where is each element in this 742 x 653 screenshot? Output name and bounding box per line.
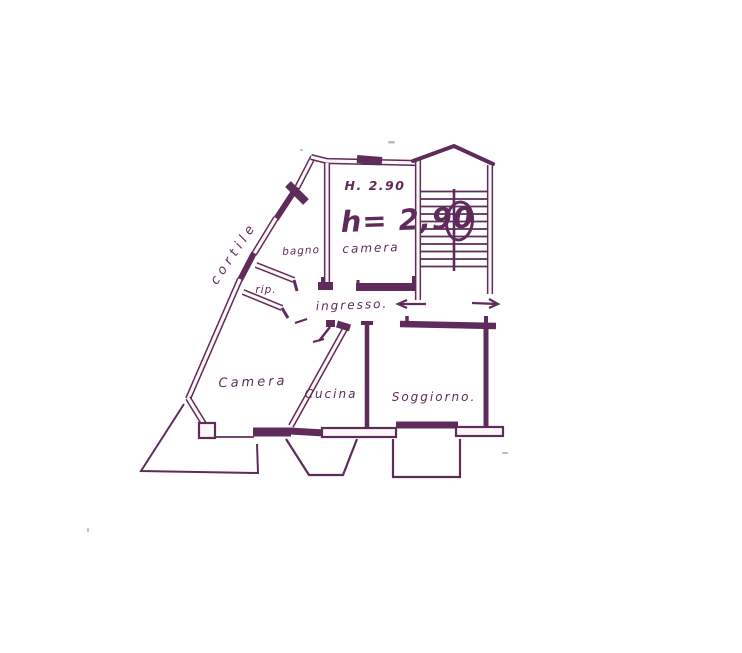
door-swing-dash (295, 319, 307, 323)
label-camera-top: camera (342, 240, 400, 256)
label-ingresso: ingresso. (316, 297, 389, 314)
speck (502, 452, 508, 454)
cucina-balcony-trapezoid (286, 439, 357, 475)
rip-partition-core (256, 265, 294, 280)
stair-roof (413, 146, 493, 164)
wall-segment (240, 253, 254, 280)
wall-segment-core (254, 218, 276, 254)
speck (87, 528, 89, 532)
camera-left-wall (318, 163, 333, 286)
diagonal-wall-cap (337, 324, 350, 328)
floor-plan-page: cortile bagno rip. camera H. 2.90 h= 2,9… (0, 0, 742, 653)
wall-bar (290, 431, 324, 433)
right-window-bar (456, 427, 503, 436)
wall-segment-core (297, 157, 313, 188)
soggiorno-balcony (393, 439, 460, 477)
arrow-left-icon (398, 300, 426, 308)
wall-bar (400, 324, 496, 326)
label-camera-main: Camera (218, 374, 288, 391)
entry-door-block (326, 320, 335, 327)
speck (388, 141, 395, 144)
rip-partition-flag (282, 308, 288, 318)
direction-arrows (398, 299, 498, 308)
soggiorno-top-wall (400, 316, 496, 330)
label-cucina: Cucina (305, 387, 358, 401)
floor-plan-drawing: cortile bagno rip. camera H. 2.90 h= 2,9… (0, 0, 742, 653)
label-soggiorno: Soggiorno. (392, 390, 477, 404)
diagonal-wall-tick (313, 339, 324, 342)
label-height-hand: h= 2,90 (340, 200, 475, 239)
label-height-printed: H. 2.90 (345, 178, 406, 193)
label-bagno: bagno (282, 244, 320, 258)
label-rip: rip. (255, 284, 276, 296)
top-window-bar (357, 159, 382, 161)
wall-elbow-core (188, 398, 204, 424)
camera-bottom-wall (356, 276, 418, 287)
bottom-walls-and-windows (216, 425, 503, 477)
top-walls (311, 157, 417, 163)
arrow-right-icon (472, 299, 498, 308)
speck (300, 149, 303, 151)
interior-walls (291, 323, 486, 429)
cucina-window-bar (322, 428, 396, 437)
rip-partition-flag (294, 280, 297, 291)
camera-cucina-diagonal-core (291, 327, 346, 426)
wall-end-block (199, 423, 215, 438)
